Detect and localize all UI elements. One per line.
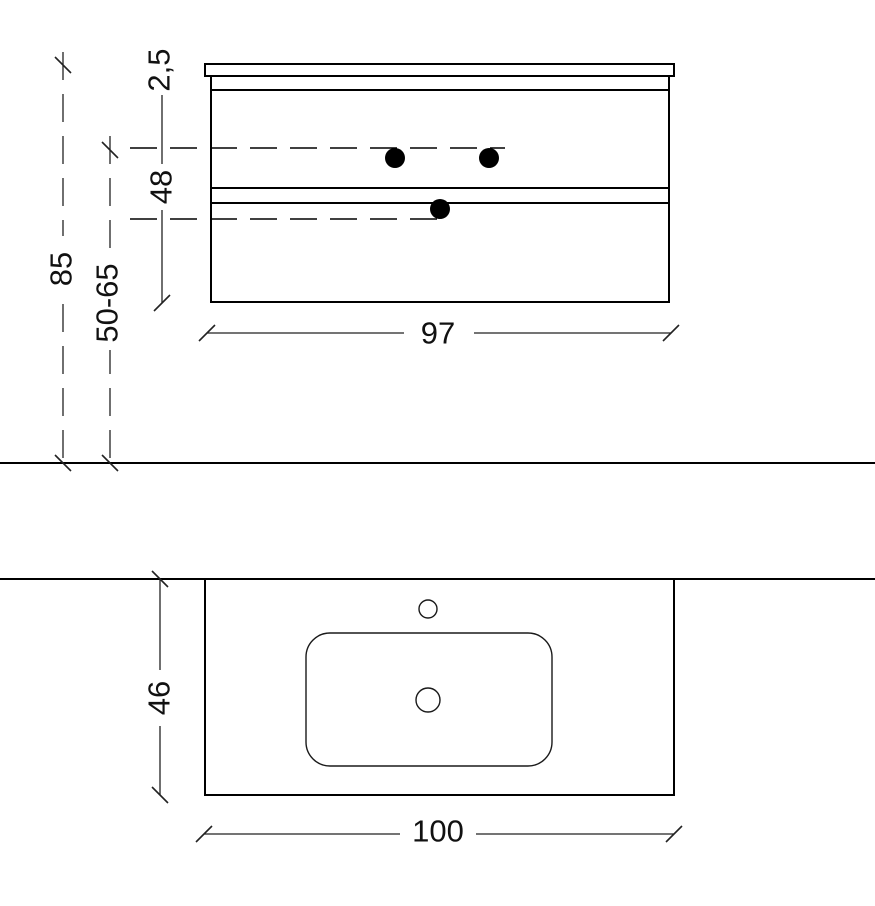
label-mount-range: 50-65 xyxy=(90,263,125,342)
label-body-height: 48 xyxy=(144,170,179,204)
drawing-canvas: 2,5 48 85 50-65 97 46 100 xyxy=(0,0,875,906)
front-elevation-view xyxy=(0,64,875,463)
fixing-dot-right xyxy=(479,148,499,168)
label-cabinet-width: 97 xyxy=(421,316,455,351)
vanity-technical-drawing: 2,5 48 85 50-65 97 46 100 xyxy=(0,0,875,906)
countertop-front xyxy=(205,64,674,76)
label-top-thickness: 2,5 xyxy=(142,48,177,91)
plan-view xyxy=(0,579,875,795)
label-countertop-width: 100 xyxy=(412,814,464,849)
label-total-height: 85 xyxy=(44,252,79,286)
fixing-dot-left xyxy=(385,148,405,168)
drain-hole xyxy=(416,688,440,712)
faucet-hole xyxy=(419,600,437,618)
fixing-dot-lower xyxy=(430,199,450,219)
label-depth: 46 xyxy=(142,681,177,715)
